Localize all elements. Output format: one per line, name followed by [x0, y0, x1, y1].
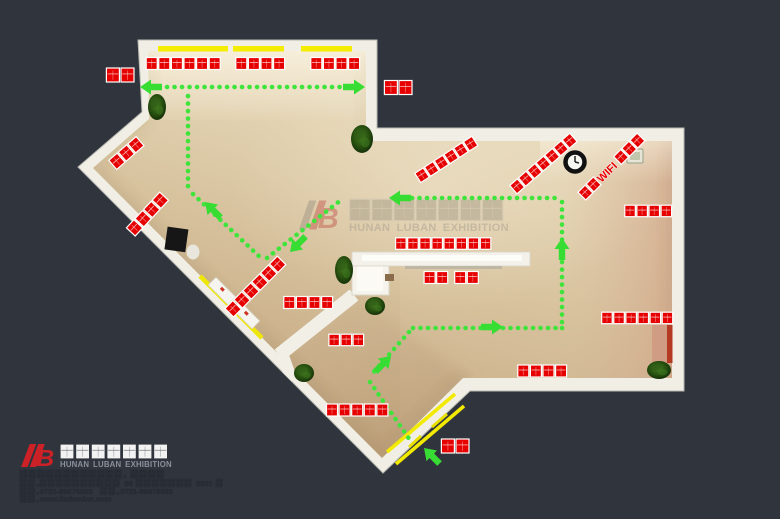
svg-text:0731-89675683: 0731-89675683: [120, 487, 173, 496]
svg-text:2201: 2201: [196, 479, 213, 488]
svg-text:HUNAN LUBAN EXHIBITION: HUNAN LUBAN EXHIBITION: [349, 222, 509, 234]
svg-text:B: B: [36, 446, 54, 472]
svg-text:B: B: [318, 203, 339, 235]
svg-text:www.lbzhanlan.com: www.lbzhanlan.com: [39, 495, 112, 504]
svg-text:HUNAN LUBAN EXHIBITION: HUNAN LUBAN EXHIBITION: [60, 460, 172, 469]
